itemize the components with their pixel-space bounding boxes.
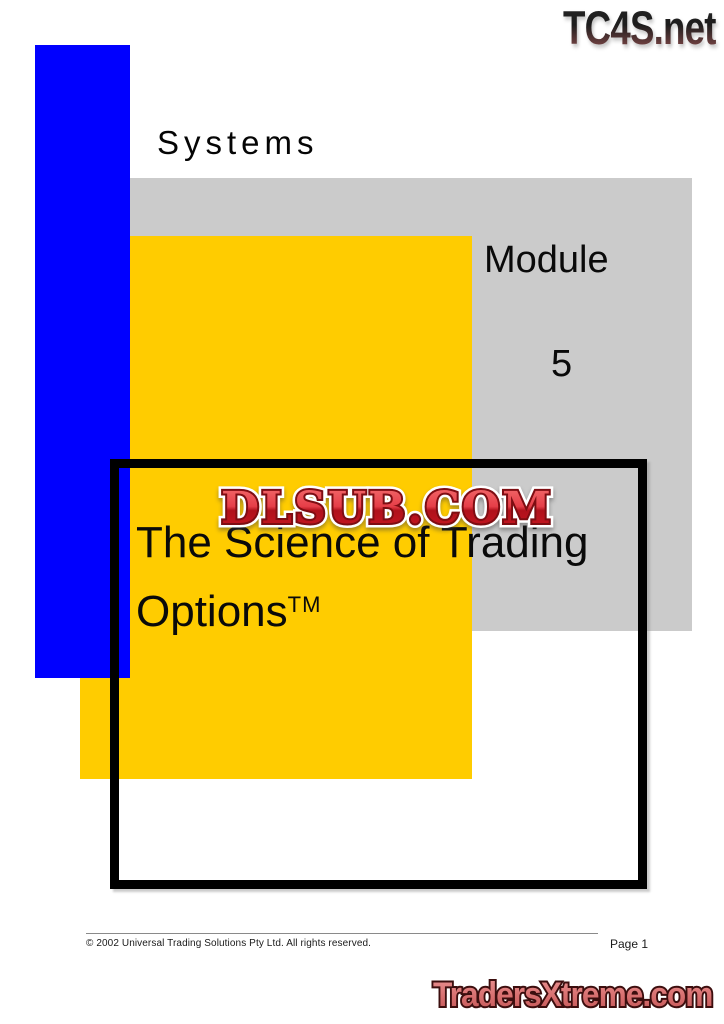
module-number: 5 (551, 343, 572, 386)
title-line-2: OptionsTM (136, 574, 588, 643)
document-cover-page: TC4S.net Systems Module 5 The Science of… (0, 0, 724, 1024)
series-label: Systems (157, 124, 319, 162)
tradersxtreme-logo-text: TradersXtreme.com (433, 976, 712, 1015)
page-number: Page 1 (610, 937, 648, 951)
tc4s-logo: TC4S.net (563, 0, 716, 55)
dlsub-watermark-text: DLSUB.COM (221, 483, 553, 534)
footer-divider (86, 933, 598, 934)
trademark-symbol: TM (288, 592, 322, 617)
copyright-notice: © 2002 Universal Trading Solutions Pty L… (86, 938, 371, 949)
module-label: Module (484, 239, 609, 282)
tradersxtreme-logo: TradersXtreme.com TradersXtreme.com Trad… (433, 976, 712, 1015)
dlsub-watermark-logo: DLSUB.COM DLSUB.COM DLSUB.COM (221, 483, 553, 534)
